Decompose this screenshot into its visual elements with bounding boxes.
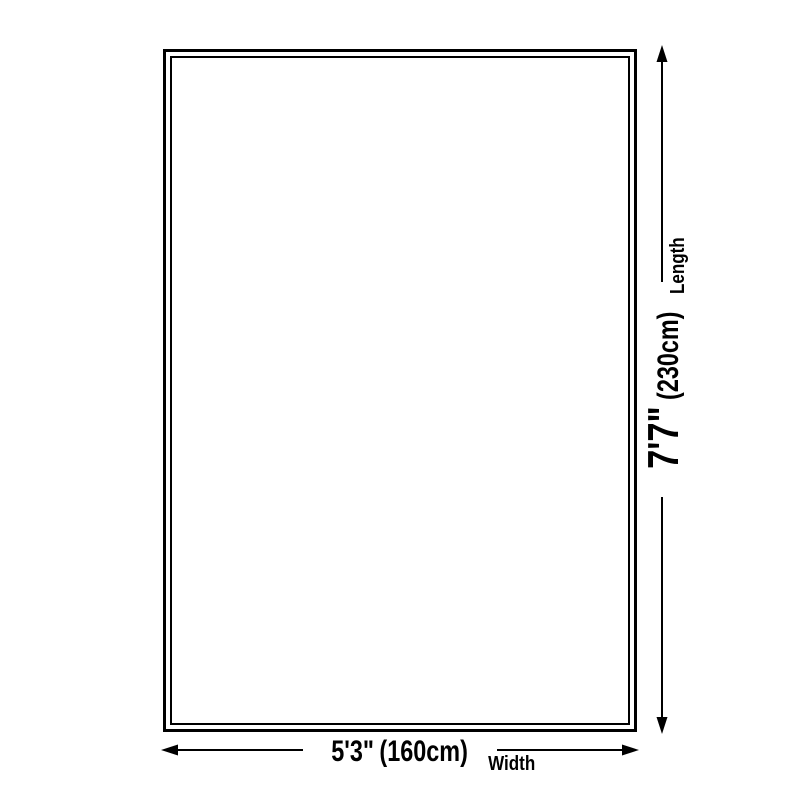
width-axis-label: Width: [472, 754, 552, 774]
width-imperial-value: 5'3": [332, 735, 375, 768]
length-arrow-down: [657, 497, 668, 734]
length-axis-label: Length: [668, 226, 688, 306]
length-dimension-value: 7'7"(230cm): [639, 270, 689, 510]
length-metric-value: (230cm): [652, 311, 685, 399]
length-imperial-value: 7'7": [639, 406, 688, 469]
rug-size-diagram: 7'7"(230cm) Length 5'3"(160cm) Width: [0, 0, 800, 800]
width-metric-value: (160cm): [380, 735, 468, 768]
length-arrow-up: [657, 45, 668, 282]
